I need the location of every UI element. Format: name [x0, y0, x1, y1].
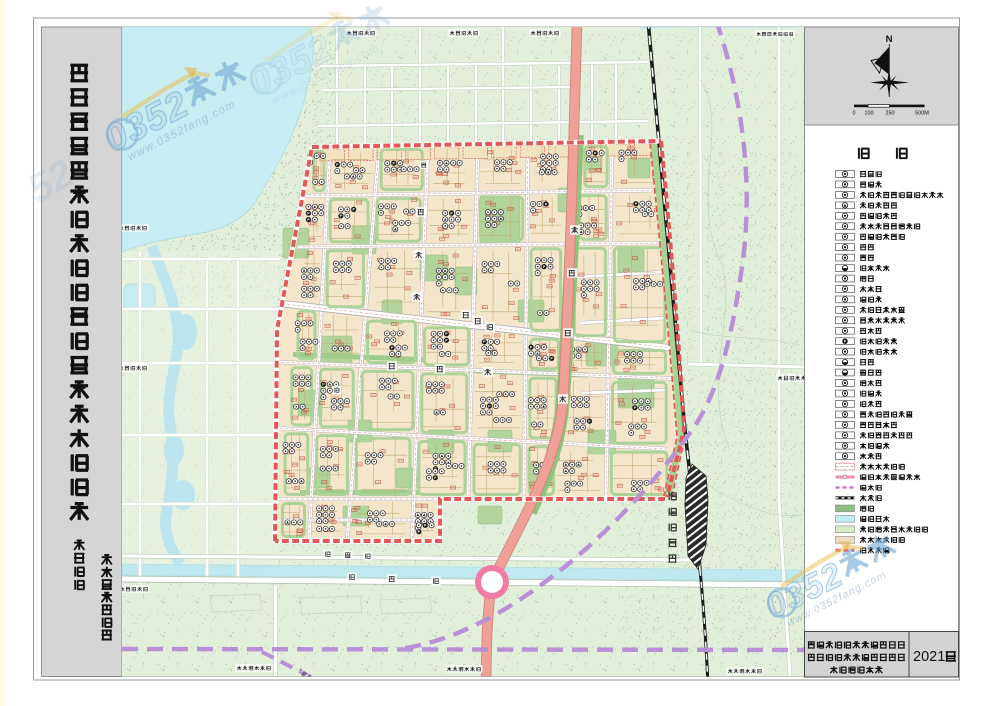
- svg-text:0: 0: [852, 111, 855, 117]
- svg-text:N: N: [886, 34, 893, 45]
- svg-text:100: 100: [864, 111, 873, 117]
- svg-text:2021: 2021: [913, 649, 945, 665]
- svg-text:P: P: [844, 340, 847, 344]
- svg-text:500M: 500M: [915, 111, 929, 117]
- svg-text:250: 250: [885, 111, 894, 117]
